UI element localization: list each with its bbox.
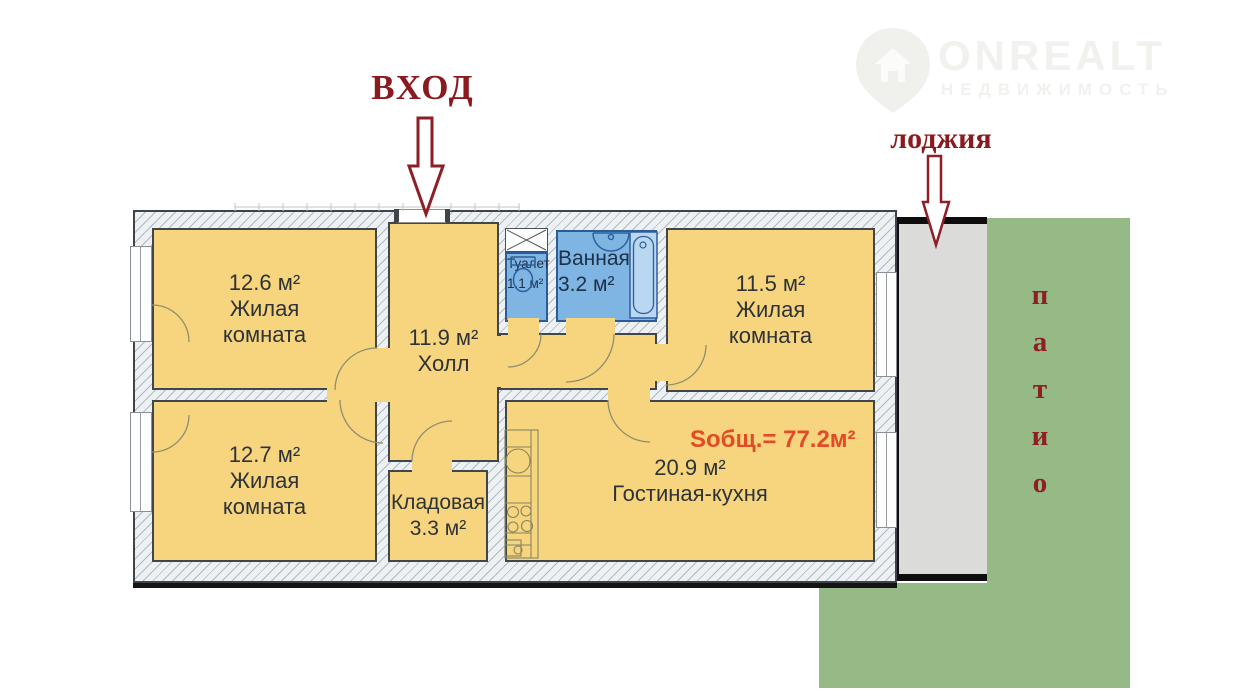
entrance-arrow-icon [409, 118, 443, 214]
room-living-3: 12.7 м² Жилая комната [152, 400, 377, 562]
room-hall-area: 11.9 м² [409, 325, 479, 351]
patio-label: п а т и о [1020, 272, 1060, 507]
door-gap-corner [375, 388, 391, 402]
window-left-room3 [130, 412, 152, 512]
hall-corridor [499, 333, 657, 390]
room-living-2: 11.5 м² Жилая комната [666, 228, 875, 392]
room-storage-area: 3.3 м² [410, 516, 466, 542]
room-living-3-area: 12.7 м² [229, 442, 300, 468]
patio-letter: а [1033, 319, 1048, 366]
patio-area-lower [819, 583, 1130, 688]
room-toilet: Туалет 1.1 м² [505, 252, 548, 322]
room-bathroom: Ванная 3.2 м² [556, 230, 657, 322]
room-kitchen-living-name: Гостиная-кухня [612, 481, 768, 507]
hall-corridor-junction [495, 336, 503, 387]
building-bottom-wall-line [133, 583, 897, 588]
room-living-1-name2: комната [223, 322, 306, 348]
room-living-1-name: Жилая [230, 296, 300, 322]
loggia-area [893, 217, 987, 581]
floor-plan-page: 12.6 м² Жилая комната 12.7 м² Жилая комн… [0, 0, 1235, 697]
room-living-3-name: Жилая [230, 468, 300, 494]
room-living-2-name2: комната [729, 323, 812, 349]
room-living-2-name: Жилая [736, 297, 806, 323]
room-bathroom-name: Ванная [558, 246, 655, 272]
room-toilet-area: 1.1 м² [507, 274, 546, 294]
door-gap-bathroom [566, 318, 615, 336]
patio-letter: о [1033, 460, 1048, 507]
window-right-room2 [876, 272, 897, 377]
room-living-3-name2: комната [223, 494, 306, 520]
room-toilet-name: Туалет [507, 254, 546, 274]
loggia-label: лоджия [876, 122, 1006, 156]
entrance-door-gap [398, 209, 446, 223]
room-storage: Кладовая 3.3 м² [388, 470, 488, 562]
logo-brand-text: ONREALT [938, 32, 1166, 80]
room-bathroom-area: 3.2 м² [558, 272, 655, 298]
vent-shaft-icon [505, 228, 548, 252]
room-living-1: 12.6 м² Жилая комната [152, 228, 377, 390]
window-left-room1 [130, 246, 152, 342]
logo-pin-icon [856, 28, 930, 113]
door-gap-room2 [655, 344, 668, 381]
logo-subtitle-text: НЕДВИЖИМОСТЬ [941, 80, 1175, 100]
entrance-label: ВХОД [358, 68, 488, 108]
room-storage-name: Кладовая [391, 490, 485, 516]
patio-letter: и [1032, 413, 1049, 460]
door-gap-toilet [508, 318, 539, 336]
room-kitchen-living-area: 20.9 м² [654, 455, 725, 481]
door-gap-living [608, 388, 650, 402]
total-area-label: Sобщ.= 77.2м² [690, 426, 856, 454]
window-right-living [876, 432, 897, 528]
patio-letter: п [1032, 272, 1049, 319]
room-kitchen-living: 20.9 м² Гостиная-кухня [505, 400, 875, 562]
door-gap-room1 [375, 348, 391, 389]
door-gap-storage [412, 460, 452, 472]
patio-letter: т [1033, 366, 1047, 413]
room-hall: 11.9 м² Холл [388, 222, 499, 462]
room-living-1-area: 12.6 м² [229, 270, 300, 296]
room-hall-name: Холл [418, 351, 470, 377]
room-living-2-area: 11.5 м² [736, 271, 806, 297]
